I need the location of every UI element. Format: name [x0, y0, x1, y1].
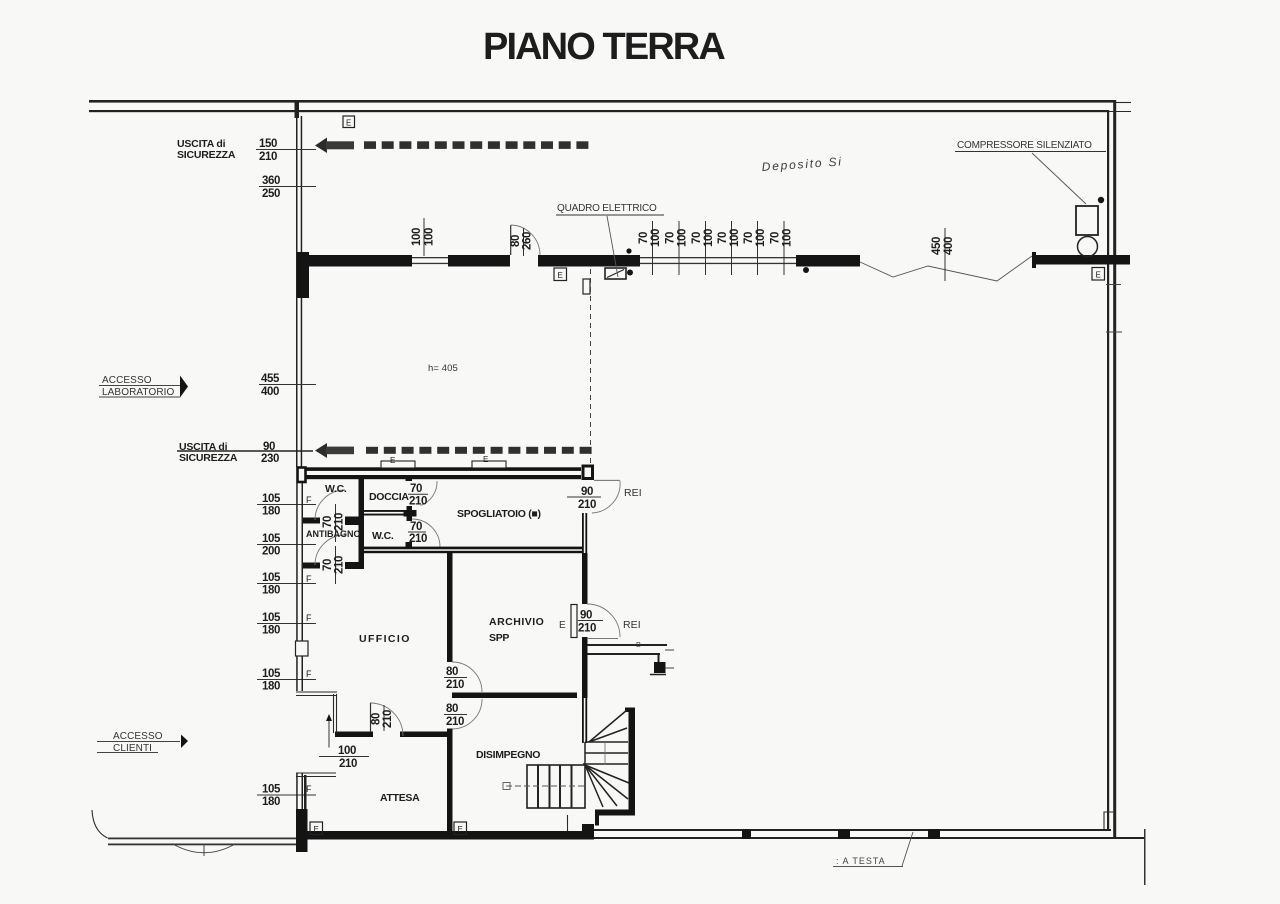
svg-text:210: 210	[382, 710, 394, 728]
svg-text:250: 250	[262, 188, 280, 200]
svg-text:210: 210	[409, 533, 427, 545]
svg-text:E: E	[458, 825, 463, 834]
svg-text:ARCHIVIO: ARCHIVIO	[489, 616, 544, 628]
svg-text:: A TESTA: : A TESTA	[836, 856, 886, 866]
svg-text:260: 260	[522, 232, 534, 250]
svg-text:180: 180	[262, 681, 280, 693]
svg-text:70: 70	[770, 232, 782, 244]
svg-text:E: E	[314, 825, 319, 834]
svg-text:400: 400	[943, 237, 955, 255]
svg-text:150: 150	[259, 138, 277, 150]
svg-text:REI: REI	[624, 487, 642, 499]
svg-text:E: E	[483, 455, 488, 464]
svg-text:SICUREZZA: SICUREZZA	[179, 452, 238, 464]
svg-text:100: 100	[729, 229, 741, 247]
svg-text:105: 105	[262, 572, 281, 584]
svg-text:DOCCIA: DOCCIA	[369, 491, 409, 503]
svg-text:ACCESSO: ACCESSO	[102, 375, 152, 386]
svg-text:h= 405: h= 405	[428, 363, 458, 374]
svg-text:100: 100	[755, 229, 767, 247]
svg-text:QUADRO ELETTRICO: QUADRO ELETTRICO	[557, 203, 657, 214]
svg-text:90: 90	[581, 486, 593, 498]
svg-text:105: 105	[262, 784, 281, 796]
svg-text:REI: REI	[623, 619, 641, 631]
svg-text:F: F	[306, 574, 312, 584]
svg-text:F: F	[306, 495, 312, 505]
svg-text:E: E	[1096, 271, 1101, 280]
svg-text:70: 70	[410, 483, 422, 495]
svg-text:SPOGLIATOIO (■): SPOGLIATOIO (■)	[457, 508, 541, 520]
svg-text:100: 100	[782, 229, 794, 247]
svg-text:70: 70	[717, 232, 729, 244]
svg-text:70: 70	[410, 521, 422, 533]
svg-text:DISIMPEGNO: DISIMPEGNO	[476, 749, 540, 761]
svg-text:SPP: SPP	[489, 632, 509, 644]
svg-text:80: 80	[510, 235, 522, 247]
svg-text:100: 100	[650, 229, 662, 247]
svg-text:180: 180	[262, 585, 280, 597]
svg-text:180: 180	[262, 506, 280, 518]
svg-text:180: 180	[262, 796, 280, 808]
svg-text:E: E	[346, 119, 351, 128]
svg-text:105: 105	[262, 612, 281, 624]
svg-text:210: 210	[339, 758, 357, 770]
svg-text:PIANO TERRA: PIANO TERRA	[483, 26, 725, 68]
svg-text:210: 210	[409, 496, 427, 508]
svg-text:230: 230	[261, 453, 279, 465]
svg-text:100: 100	[411, 228, 423, 246]
svg-text:70: 70	[665, 232, 677, 244]
svg-text:100: 100	[703, 229, 715, 247]
svg-text:400: 400	[261, 386, 279, 398]
svg-text:80: 80	[371, 713, 383, 725]
svg-text:UFFICIO: UFFICIO	[359, 633, 411, 645]
svg-text:80: 80	[446, 666, 458, 678]
svg-text:210: 210	[578, 499, 596, 511]
svg-text:70: 70	[322, 559, 334, 571]
svg-text:200: 200	[262, 546, 280, 558]
svg-text:210: 210	[578, 623, 596, 635]
svg-text:105: 105	[262, 533, 281, 545]
svg-text:105: 105	[262, 493, 281, 505]
svg-text:105: 105	[262, 668, 281, 680]
svg-text:210: 210	[446, 679, 464, 691]
svg-text:70: 70	[743, 232, 755, 244]
svg-text:90: 90	[580, 610, 592, 622]
svg-text:W.C.: W.C.	[325, 483, 347, 495]
svg-text:180: 180	[262, 625, 280, 637]
svg-text:F: F	[306, 669, 312, 679]
svg-text:ATTESA: ATTESA	[380, 792, 420, 804]
svg-text:E: E	[390, 456, 395, 465]
svg-text:70: 70	[322, 516, 334, 528]
svg-text:B: B	[636, 640, 641, 649]
svg-text:F: F	[306, 613, 312, 623]
svg-text:COMPRESSORE SILENZIATO: COMPRESSORE SILENZIATO	[957, 140, 1092, 151]
svg-text:80: 80	[446, 703, 458, 715]
svg-text:ACCESSO: ACCESSO	[113, 731, 163, 742]
svg-text:LABORATORIO: LABORATORIO	[102, 387, 175, 398]
svg-text:360: 360	[262, 175, 280, 187]
svg-text:100: 100	[677, 229, 689, 247]
svg-text:210: 210	[334, 556, 346, 574]
svg-text:210: 210	[446, 716, 464, 728]
svg-text:ANTIBAGNO: ANTIBAGNO	[306, 529, 361, 539]
svg-text:E: E	[558, 271, 563, 280]
svg-text:100: 100	[338, 745, 356, 757]
svg-text:F: F	[306, 784, 312, 794]
svg-text:70: 70	[638, 232, 650, 244]
svg-text:210: 210	[259, 151, 277, 163]
svg-text:100: 100	[424, 228, 436, 246]
svg-text:70: 70	[691, 232, 703, 244]
svg-text:SICUREZZA: SICUREZZA	[177, 149, 236, 161]
svg-text:E: E	[559, 620, 566, 631]
svg-text:455: 455	[261, 373, 280, 385]
svg-text:W.C.: W.C.	[372, 530, 394, 542]
svg-text:450: 450	[931, 237, 943, 255]
